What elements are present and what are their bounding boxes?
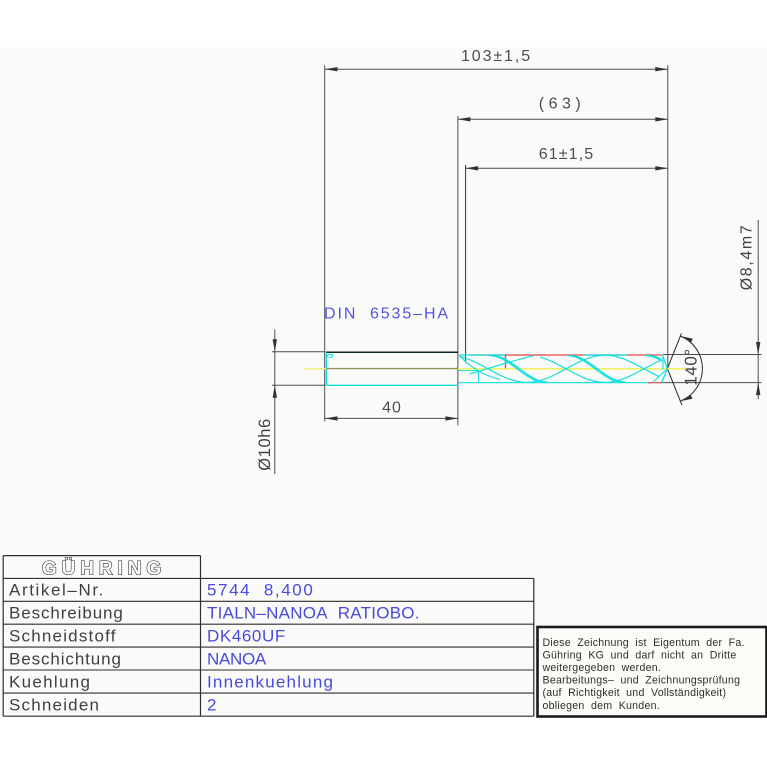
svg-text:Diese Zeichnung ist Eigentum d: Diese Zeichnung ist Eigentum der Fa. [543, 637, 745, 649]
svg-text:Beschreibung: Beschreibung [9, 604, 124, 623]
svg-text:DK460UF: DK460UF [207, 627, 286, 646]
svg-text:Schneiden: Schneiden [9, 695, 100, 714]
svg-text:103±1,5: 103±1,5 [461, 48, 532, 65]
svg-text:(auf Richtigkeit und Vollständ: (auf Richtigkeit und Vollständigkeit) [543, 687, 727, 699]
svg-text:Beschichtung: Beschichtung [9, 649, 122, 668]
svg-text:NANOA: NANOA [207, 649, 267, 668]
svg-text:40: 40 [382, 400, 402, 417]
svg-text:Kuehlung: Kuehlung [9, 672, 91, 691]
svg-text:Ø8,4m7: Ø8,4m7 [739, 224, 756, 291]
svg-text:TIALN–NANOA RATIOBO.: TIALN–NANOA RATIOBO. [207, 604, 420, 623]
svg-text:DIN 6535–HA: DIN 6535–HA [324, 305, 450, 322]
svg-text:GÜHRING: GÜHRING [42, 558, 166, 579]
svg-text:Gühring KG und darf nicht an D: Gühring KG und darf nicht an Dritte [543, 650, 737, 662]
svg-text:(63): (63) [539, 95, 585, 112]
svg-text:Ø10h6: Ø10h6 [256, 418, 274, 471]
svg-text:140°: 140° [682, 348, 701, 385]
svg-text:obliegen dem Kunden.: obliegen dem Kunden. [543, 700, 660, 712]
svg-text:Schneidstoff: Schneidstoff [9, 627, 117, 646]
svg-text:61±1,5: 61±1,5 [539, 146, 594, 163]
svg-text:5744 8,400: 5744 8,400 [207, 581, 314, 600]
svg-text:Innenkuehlung: Innenkuehlung [207, 672, 334, 691]
svg-text:weitergegeben werden.: weitergegeben werden. [542, 662, 662, 674]
svg-text:2: 2 [207, 695, 217, 714]
svg-text:Artikel–Nr.: Artikel–Nr. [9, 581, 105, 600]
svg-text:Bearbeitungs– und Zeichnungspr: Bearbeitungs– und Zeichnungsprüfung [543, 675, 741, 687]
